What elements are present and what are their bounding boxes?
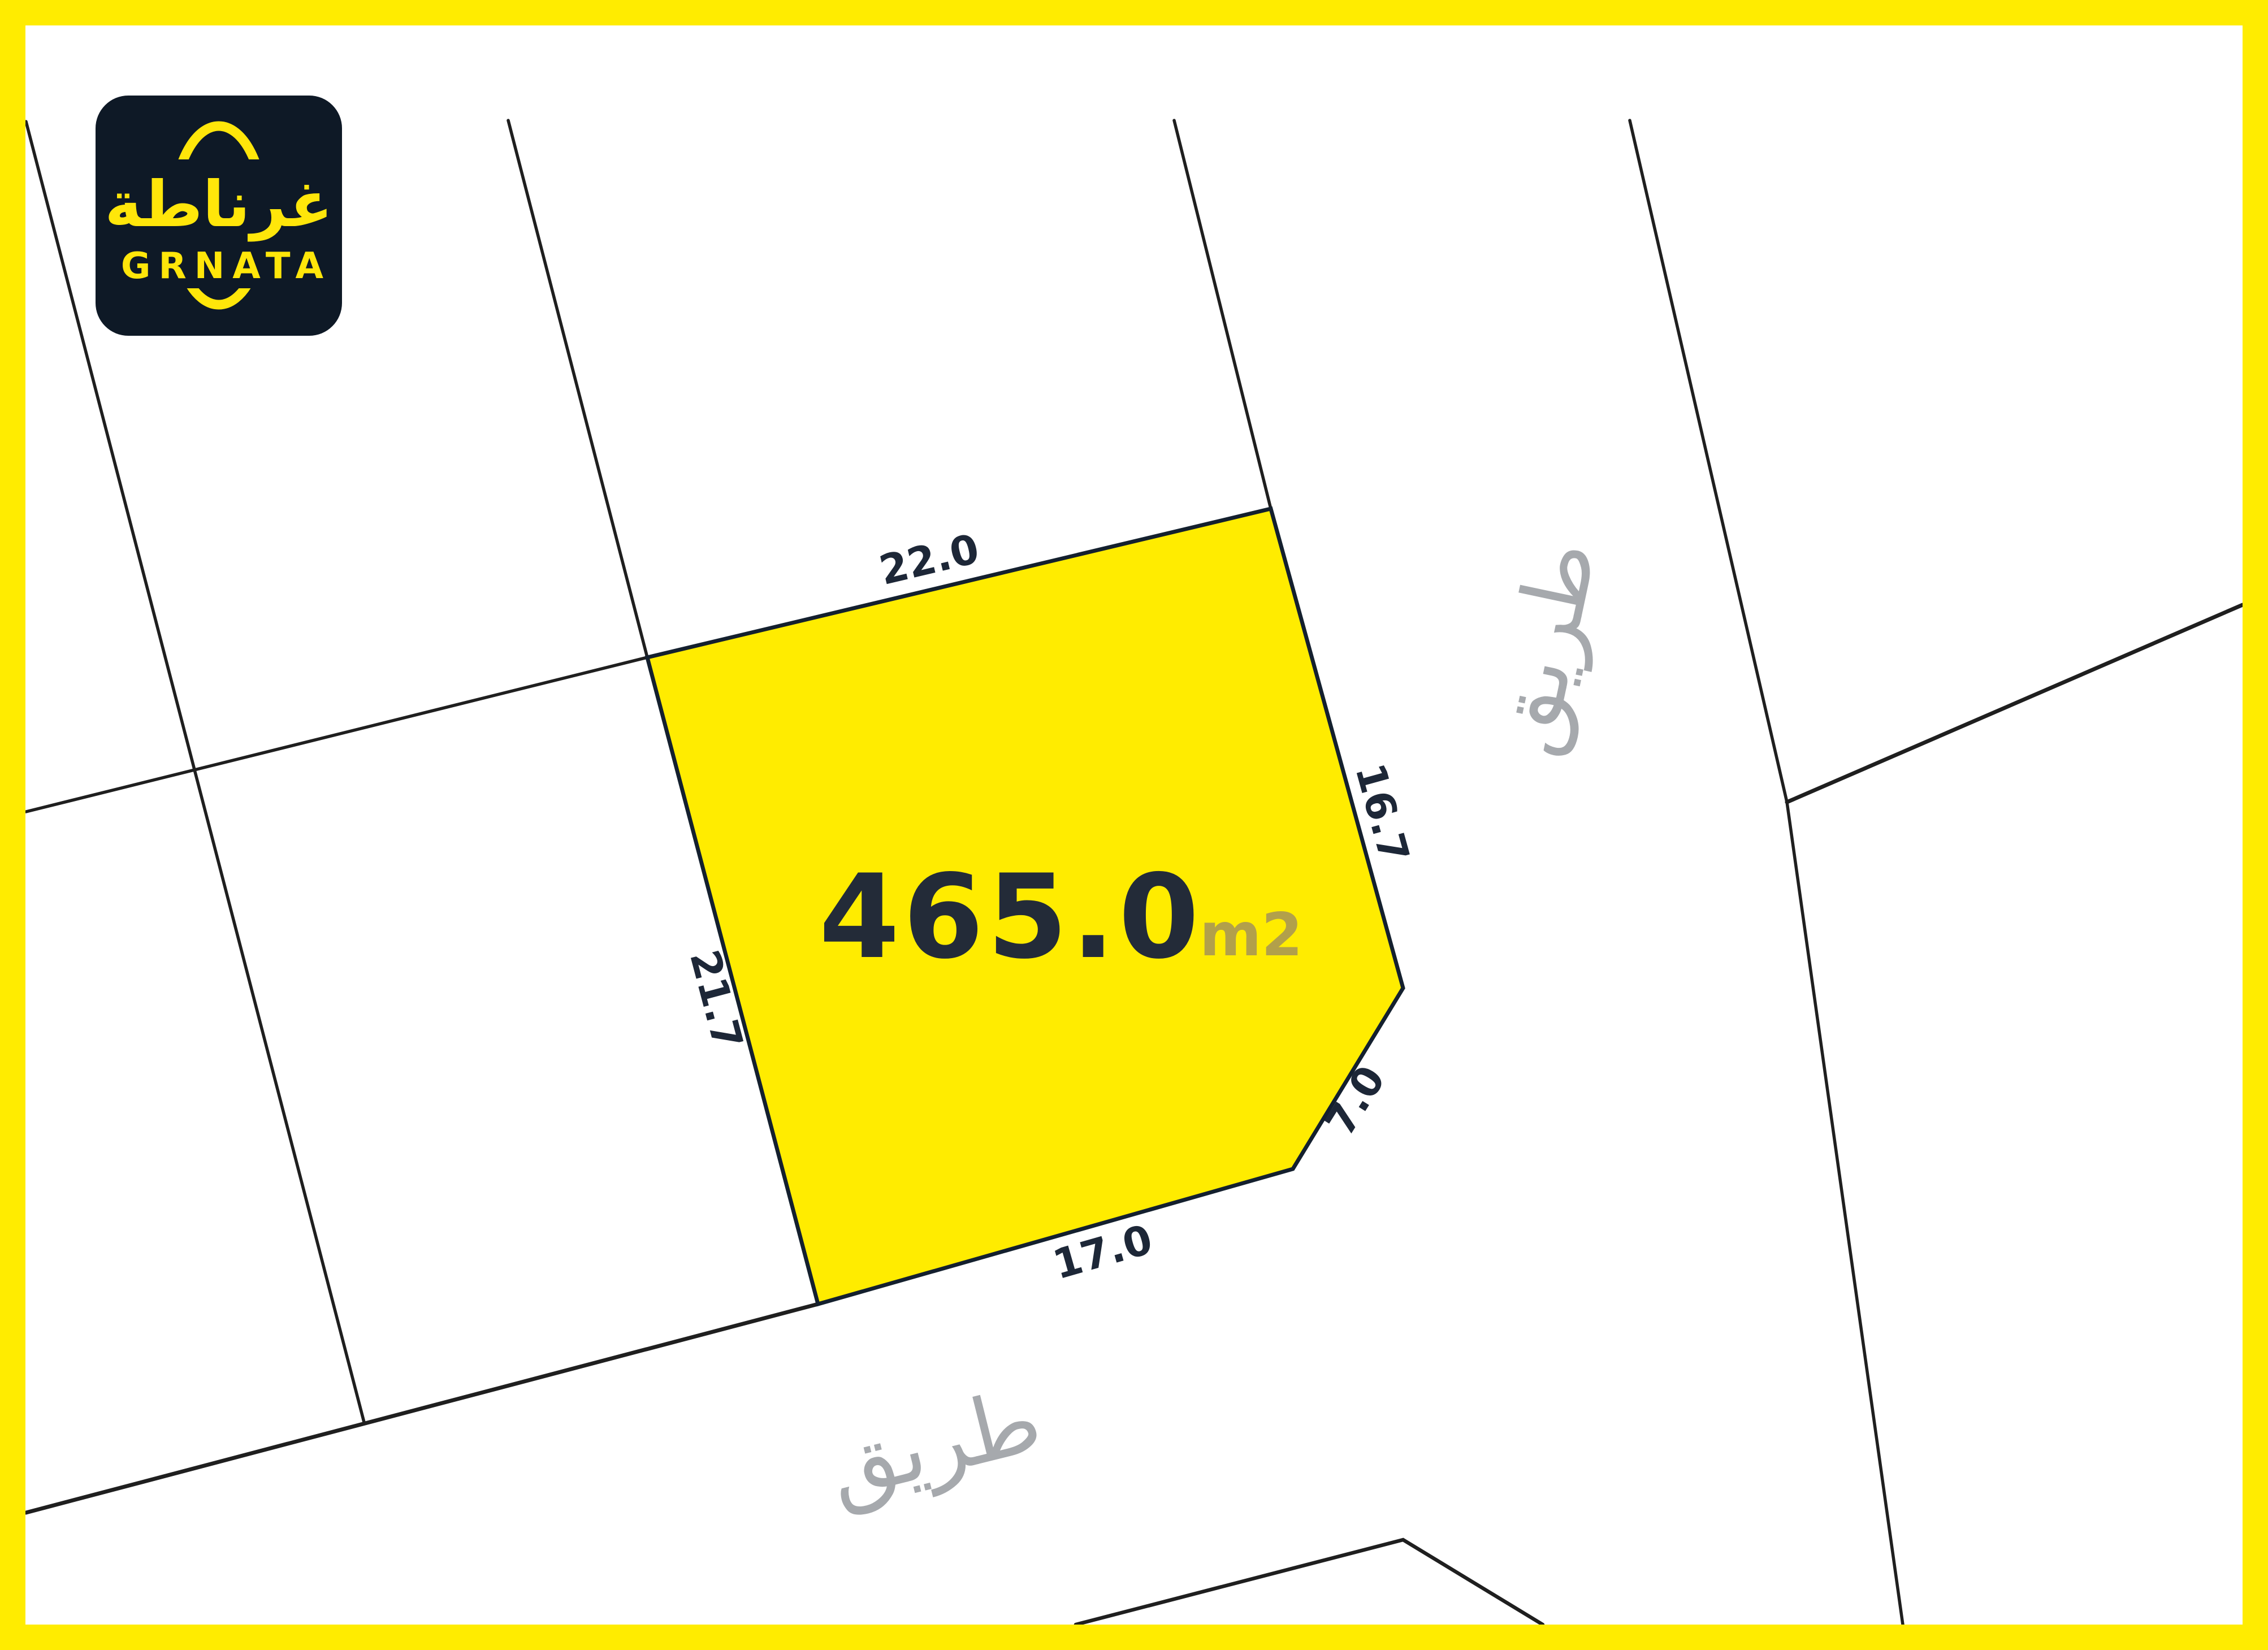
- plot-area-value: 465.0: [819, 850, 1202, 985]
- plot-map-image: طريق طريق 22.0 16.7 21.7 7.0 17.0 465.0 …: [0, 0, 2268, 1650]
- plot-area-unit: m2: [1200, 900, 1302, 969]
- grnata-logo: غرناطة GRNATA: [96, 96, 342, 336]
- logo-arabic-name: غرناطة: [105, 168, 333, 241]
- logo-latin-name: GRNATA: [121, 245, 331, 287]
